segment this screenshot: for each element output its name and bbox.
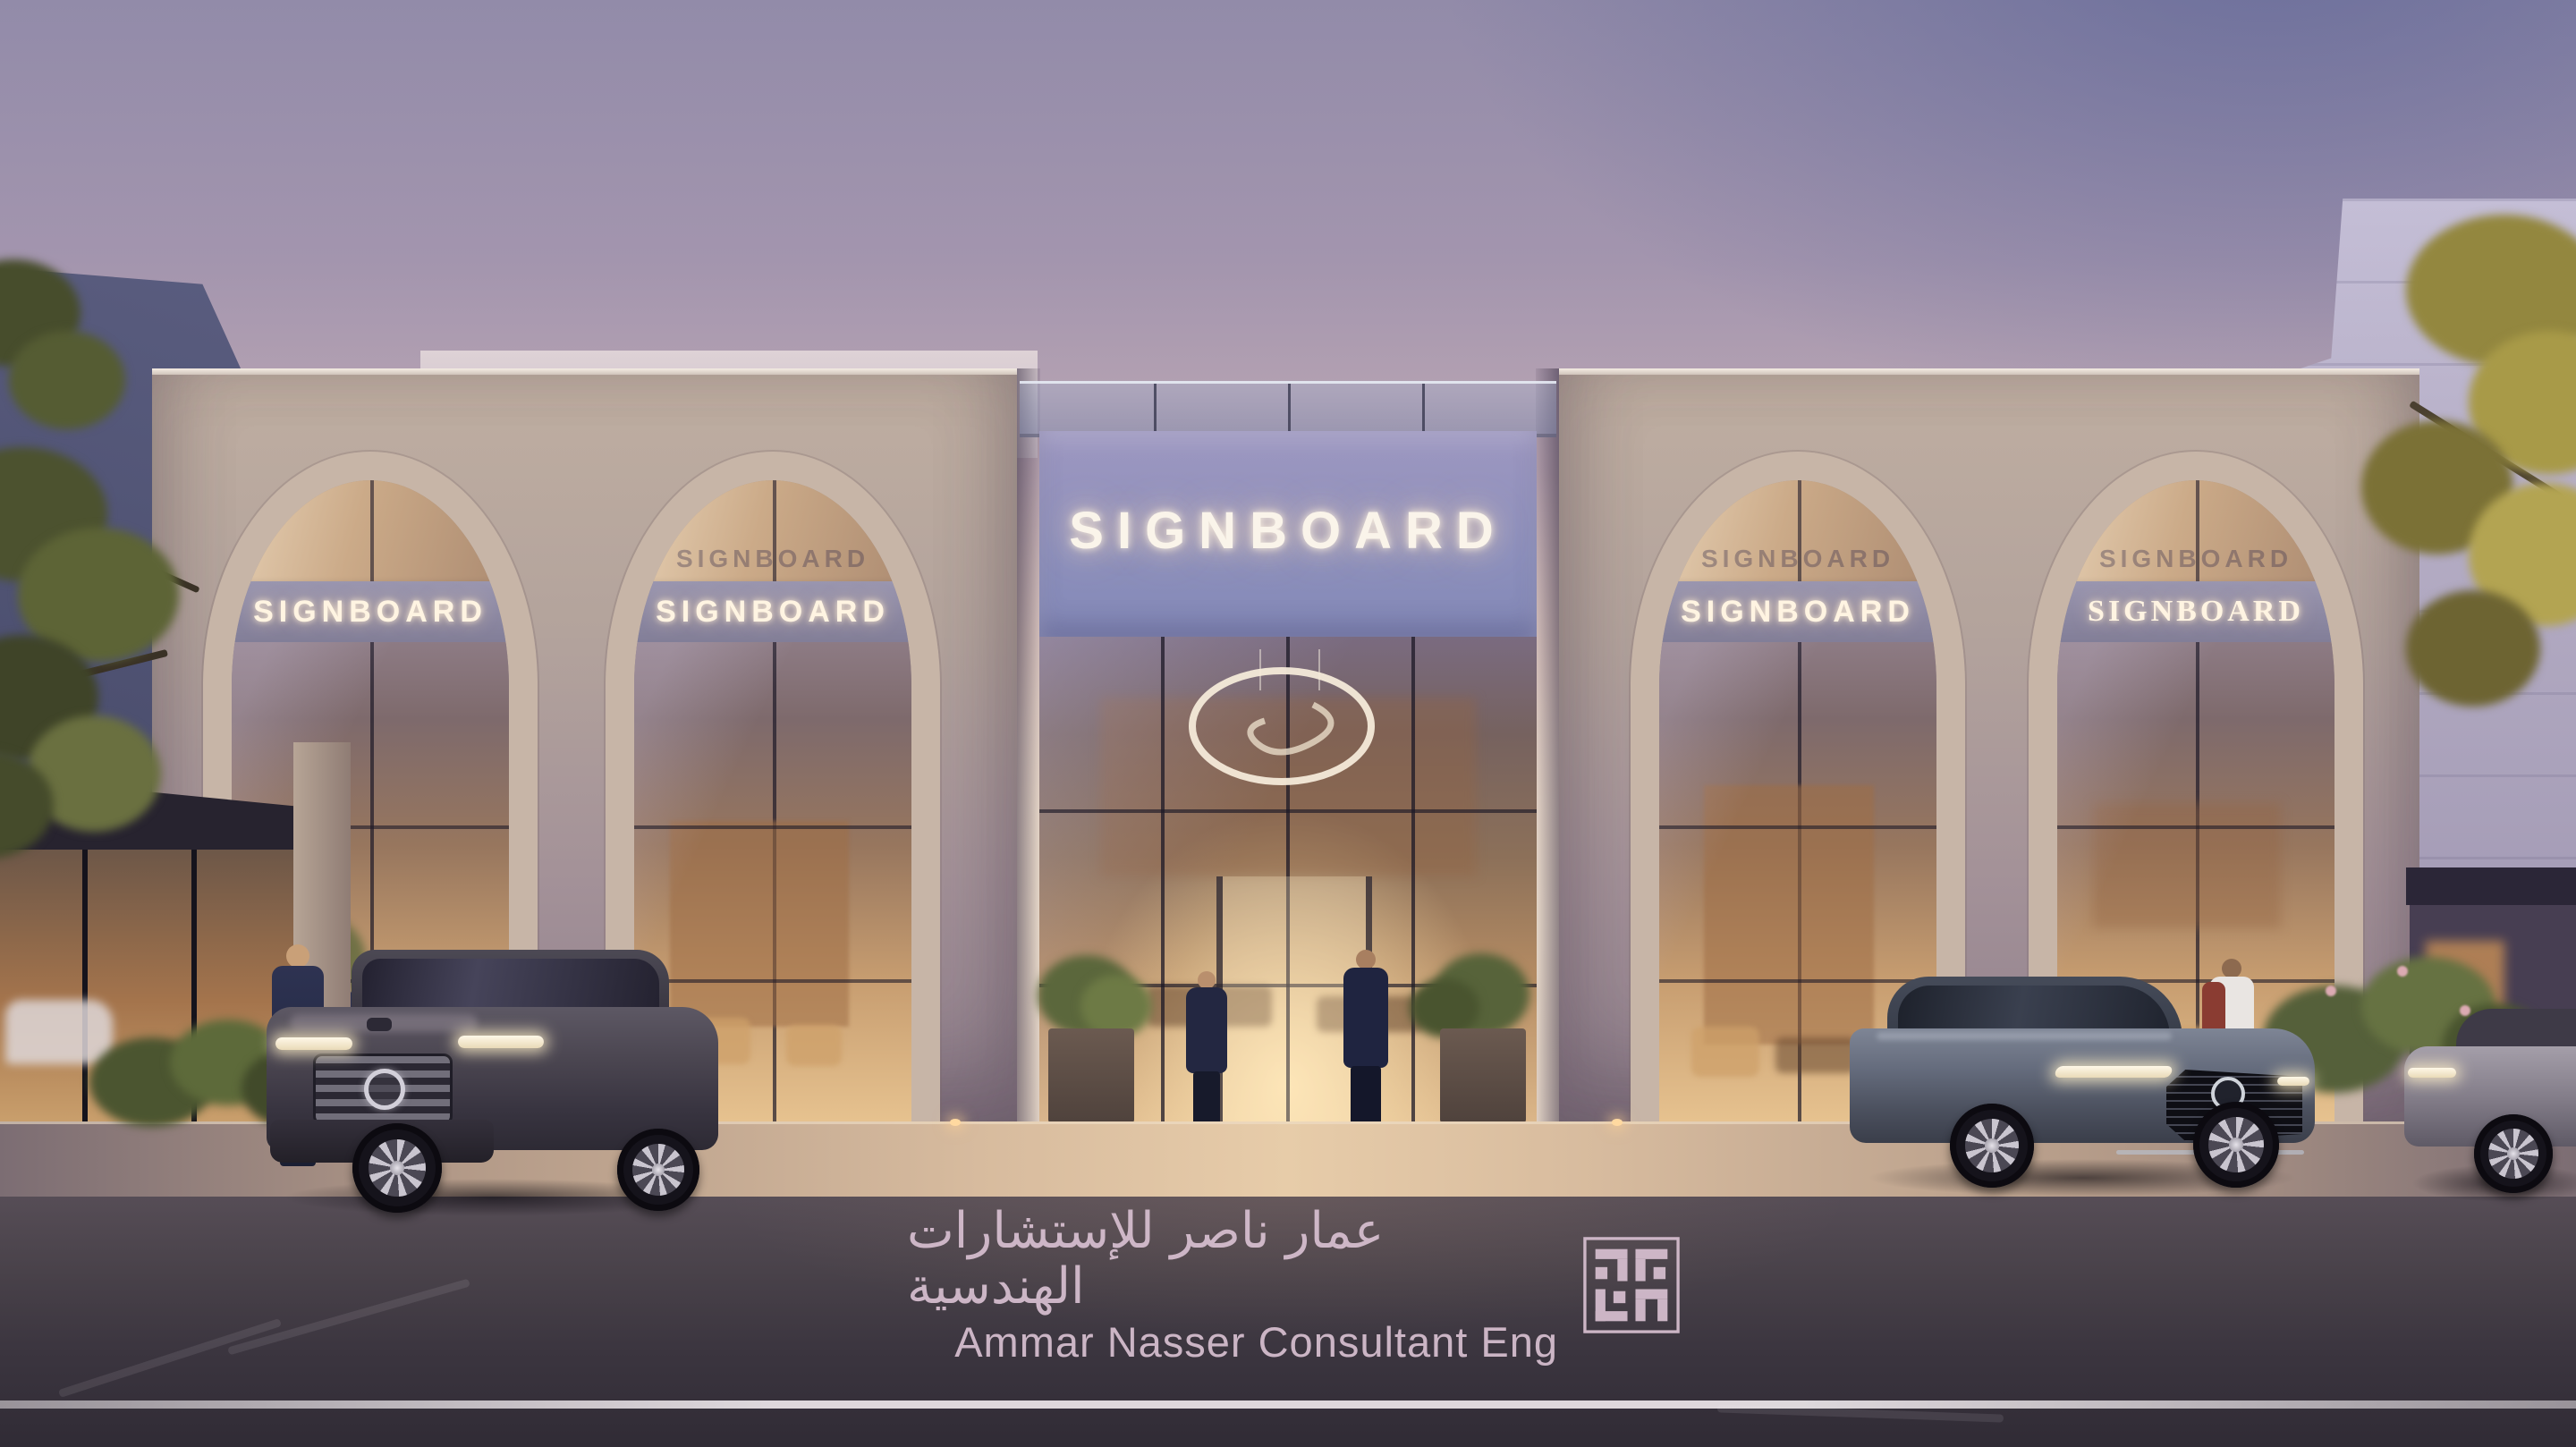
wheel-hub <box>2507 1147 2520 1160</box>
scene-canvas: SIGNBOARD <box>0 0 2576 1447</box>
arch-signboard-text: SIGNBOARD <box>629 581 917 642</box>
arch-sign-ghost: SIGNBOARD <box>1659 545 1936 573</box>
wheel-rear <box>617 1129 699 1211</box>
headlight <box>2054 1066 2173 1078</box>
road-line <box>0 1400 2576 1409</box>
arch-fanlight <box>232 480 509 581</box>
wheel-rear <box>1950 1104 2034 1188</box>
rooftop-glass-railing <box>1020 381 1556 437</box>
watermark-arabic: عمار ناصر للإستشارات الهندسية <box>907 1204 1558 1314</box>
watermark-english: Ammar Nasser Consultant Eng <box>954 1317 1558 1367</box>
sedan-partial-right <box>2404 1009 2576 1197</box>
planter-box <box>1048 1028 1134 1123</box>
arch-signboard-text: SIGNBOARD <box>1654 581 1942 642</box>
flower <box>2326 986 2336 996</box>
headlight <box>275 1037 352 1050</box>
wheel-hub <box>2229 1138 2242 1151</box>
suv-dark <box>267 950 718 1211</box>
wheel-front <box>2474 1114 2553 1193</box>
parking-stripe <box>58 1318 282 1398</box>
planter-box <box>1440 1028 1526 1123</box>
arch-sign-band: SIGNBOARD <box>629 581 917 642</box>
suv-emblem <box>364 1069 405 1110</box>
wheel-front <box>2193 1102 2279 1188</box>
transom-bar <box>1039 809 1537 813</box>
ground-uplight <box>1612 1119 1623 1126</box>
watermark-text: عمار ناصر للإستشارات الهندسية Ammar Nass… <box>907 1204 1558 1367</box>
side-mirror <box>367 1018 392 1031</box>
person-head <box>2222 959 2241 978</box>
arch-signboard-text: SIGNBOARD <box>226 581 514 642</box>
roof-coping <box>152 368 1017 375</box>
person-torso <box>1186 987 1227 1073</box>
suv-windows <box>362 959 659 1014</box>
entrance-curtain-wall <box>1039 637 1537 1125</box>
watermark: عمار ناصر للإستشارات الهندسية Ammar Nass… <box>907 1220 1682 1350</box>
foliage-blob <box>2406 590 2540 707</box>
arch-sign-band: SIGNBOARD <box>1654 581 1942 642</box>
ground-uplight <box>950 1119 961 1126</box>
parking-stripe <box>227 1279 470 1356</box>
wheel-hub <box>1985 1138 1998 1152</box>
neighbor-right-canopy <box>2406 867 2576 905</box>
flower <box>2397 966 2408 977</box>
person-at-entrance <box>1340 950 1392 1139</box>
railing-post <box>1154 384 1157 434</box>
arch-sign-band: SIGNBOARD <box>226 581 514 642</box>
sedan-blue-gray <box>1850 977 2315 1191</box>
wheel-hub <box>390 1161 404 1175</box>
arch-fanlight: SIGNBOARD <box>1659 480 1936 581</box>
foliage-blob <box>9 331 125 429</box>
arch-fanlight: SIGNBOARD <box>634 480 911 581</box>
company-logo-icon <box>1581 1235 1682 1335</box>
main-signboard-text: SIGNBOARD <box>1039 501 1537 561</box>
headlight <box>458 1036 544 1048</box>
tree-left <box>0 447 259 912</box>
railing-post <box>1288 384 1291 434</box>
railing-post <box>1422 384 1425 434</box>
shoulder-highlight <box>1877 1032 2172 1040</box>
main-sign-panel: SIGNBOARD <box>1039 431 1537 637</box>
headlight <box>2408 1068 2456 1078</box>
headlight-corner <box>2277 1077 2309 1086</box>
person-head <box>1198 971 1216 989</box>
ring-chandelier <box>1179 649 1385 801</box>
person-torso <box>1343 968 1388 1068</box>
person-head <box>1356 950 1376 969</box>
arch-sign-ghost: SIGNBOARD <box>634 545 911 573</box>
tree-right <box>2263 215 2576 751</box>
wheel-front <box>352 1123 442 1213</box>
person-at-entrance <box>1182 971 1231 1134</box>
